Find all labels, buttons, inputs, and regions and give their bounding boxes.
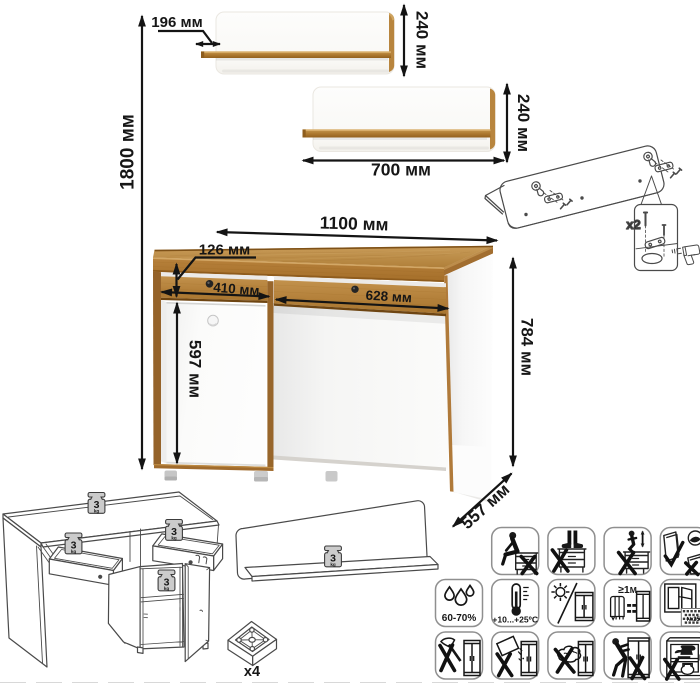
- svg-text:≥1M: ≥1M: [618, 584, 637, 596]
- svg-text:1100 мм: 1100 мм: [320, 212, 389, 234]
- svg-text:597 мм: 597 мм: [186, 340, 205, 398]
- svg-text:x4: x4: [244, 664, 260, 680]
- svg-text:№25: №25: [687, 616, 700, 623]
- svg-text:1800 мм: 1800 мм: [118, 114, 139, 190]
- svg-text:240 мм: 240 мм: [514, 94, 533, 152]
- svg-text:126 мм: 126 мм: [199, 242, 250, 259]
- svg-text:628 мм: 628 мм: [365, 288, 412, 306]
- svg-text:+10...+25ºC: +10...+25ºC: [492, 615, 538, 625]
- svg-text:196 мм: 196 мм: [151, 14, 202, 31]
- svg-text:700 мм: 700 мм: [371, 160, 431, 180]
- svg-text:x2: x2: [626, 217, 640, 232]
- svg-text:784 мм: 784 мм: [518, 318, 537, 376]
- svg-text:240 мм: 240 мм: [413, 11, 432, 69]
- svg-text:60-70%: 60-70%: [442, 613, 477, 624]
